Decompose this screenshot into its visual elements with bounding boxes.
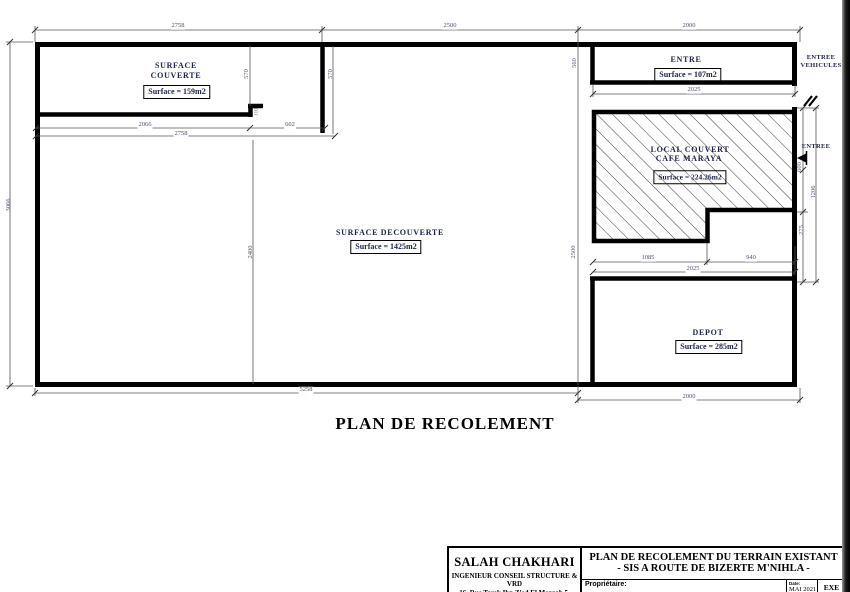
status-badge: EXE	[817, 580, 845, 592]
surface-decouverte-area-box: Surface = 1425m2	[350, 240, 421, 254]
entree-vehicules-label-2: VEHICULES	[801, 63, 842, 70]
page-edge-strip	[842, 0, 850, 592]
entre-label: ENTRE	[670, 56, 701, 64]
depot-label: DEPOT	[692, 329, 723, 337]
date-value: MAI 2021	[789, 586, 818, 592]
dim-top-left: 2758	[171, 23, 186, 30]
dim-right-height: 1206	[811, 185, 818, 200]
surface-couverte-label-1: SURFACE	[155, 62, 197, 70]
dim-sub-left: 2066	[138, 122, 153, 129]
dim-couverte-height-right: 570	[328, 68, 335, 80]
dim-cafe-left: 1085	[641, 255, 656, 262]
dim-bottom-right: 2000	[682, 394, 697, 401]
dim-right-gate: 600	[797, 161, 804, 173]
engineer-role: INGENIEUR CONSEIL STRUCTURE & VRD	[449, 572, 580, 588]
project-title-line2: - SIS A ROUTE DE BIZERTE M'NIHLA -	[582, 563, 845, 574]
dim-top-mid: 2500	[443, 23, 458, 30]
surface-decouverte-label: SURFACE DECOUVERTE	[336, 229, 444, 237]
dim-sub-total: 2758	[174, 131, 189, 138]
page-title: PLAN DE RECOLEMENT	[335, 414, 554, 434]
dim-mid-height: 2500	[571, 245, 578, 260]
owner-label: Propriétaire:	[585, 581, 786, 588]
entrance-slash-icon	[804, 96, 817, 106]
surface-couverte-area-box: Surface = 159m2	[143, 85, 210, 99]
local-couvert-label-1: LOCAL COUVERT	[651, 146, 730, 154]
title-block-project-cell: PLAN DE RECOLEMENT DU TERRAIN EXISTANT -…	[582, 548, 845, 580]
dim-cafe-total: 2025	[686, 266, 701, 273]
dim-left-height: 3066	[6, 198, 13, 213]
title-block-date-cell: Date: MAI 2021	[786, 580, 818, 592]
title-block-owner-cell: Propriétaire:	[582, 580, 786, 592]
title-block-engineer-cell: SALAH CHAKHARI INGENIEUR CONSEIL STRUCTU…	[449, 548, 582, 592]
plan-canvas: SURFACE COUVERTE Surface = 159m2 SURFACE…	[0, 0, 850, 592]
dim-decouverte-height: 2400	[248, 245, 255, 260]
dim-mid-top: 560	[572, 57, 579, 69]
local-couvert-area-box: Surface = 224.26m2	[653, 170, 726, 184]
dim-sub-right: 602	[284, 122, 296, 129]
dim-cafe-right: 940	[745, 255, 757, 262]
local-couvert-label-2: CAFE MARAYA	[656, 155, 722, 163]
entree-vehicules-label-1: ENTREE	[807, 55, 836, 62]
dim-top-right: 2000	[682, 23, 697, 30]
surface-couverte-label-2: COUVERTE	[151, 72, 202, 80]
depot-area-box: Surface = 285m2	[675, 340, 742, 354]
project-title-line1: PLAN DE RECOLEMENT DU TERRAIN EXISTANT	[582, 552, 845, 563]
engineer-name: SALAH CHAKHARI	[449, 555, 580, 570]
dim-bottom-left: 5258	[299, 387, 314, 394]
plan-linework	[0, 0, 850, 592]
dim-entre-width: 2025	[687, 87, 702, 94]
dim-step: 110	[254, 107, 260, 117]
entre-area-box: Surface = 107m2	[654, 68, 721, 82]
title-block: SALAH CHAKHARI INGENIEUR CONSEIL STRUCTU…	[447, 546, 845, 592]
entree-label: ENTREE	[802, 144, 831, 151]
dim-couverte-height-left: 570	[244, 68, 251, 80]
dim-right-low: 275	[799, 224, 806, 236]
